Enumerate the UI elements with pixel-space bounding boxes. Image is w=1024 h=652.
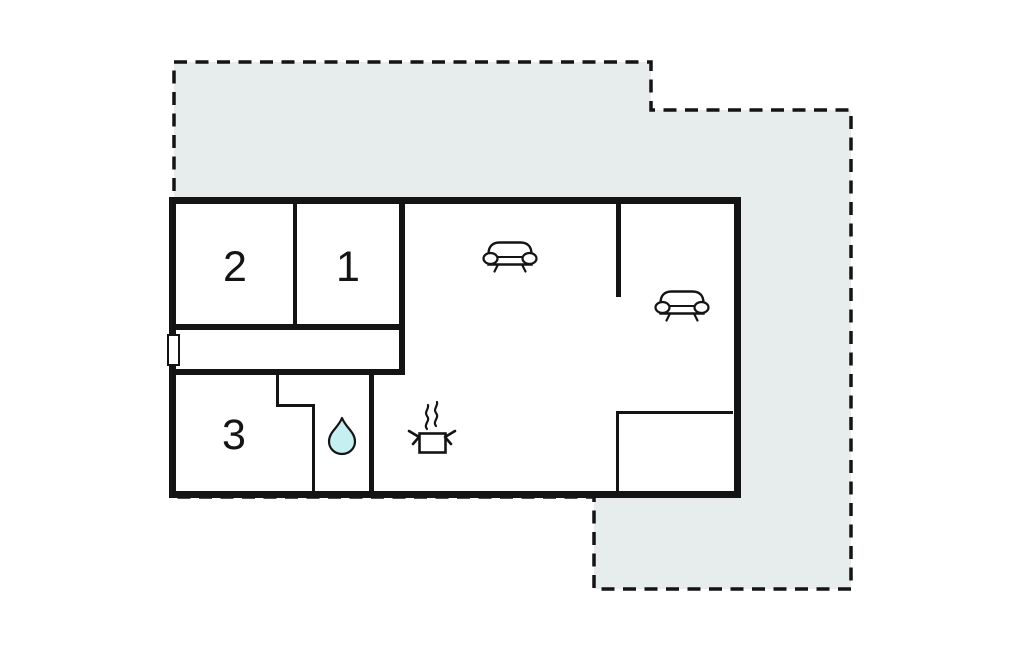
floor-plan-canvas: 2 1 3 — [0, 0, 1024, 652]
interior-wall — [369, 375, 374, 491]
room-label-3: 3 — [222, 411, 246, 459]
room-label-2: 2 — [223, 243, 247, 291]
interior-wall — [616, 204, 621, 297]
interior-wall — [176, 324, 405, 330]
interior-wall — [399, 204, 405, 375]
interior-wall — [312, 404, 315, 491]
house-outline — [173, 201, 738, 495]
floor-plan-drawing: 2 1 3 — [0, 0, 1024, 652]
door-window-marker — [168, 335, 179, 365]
interior-wall — [176, 369, 405, 375]
interior-wall — [616, 411, 733, 414]
room-label-1: 1 — [336, 243, 360, 291]
interior-wall — [616, 411, 619, 491]
interior-wall — [276, 375, 279, 405]
interior-wall — [293, 204, 297, 330]
interior-wall — [276, 404, 315, 407]
